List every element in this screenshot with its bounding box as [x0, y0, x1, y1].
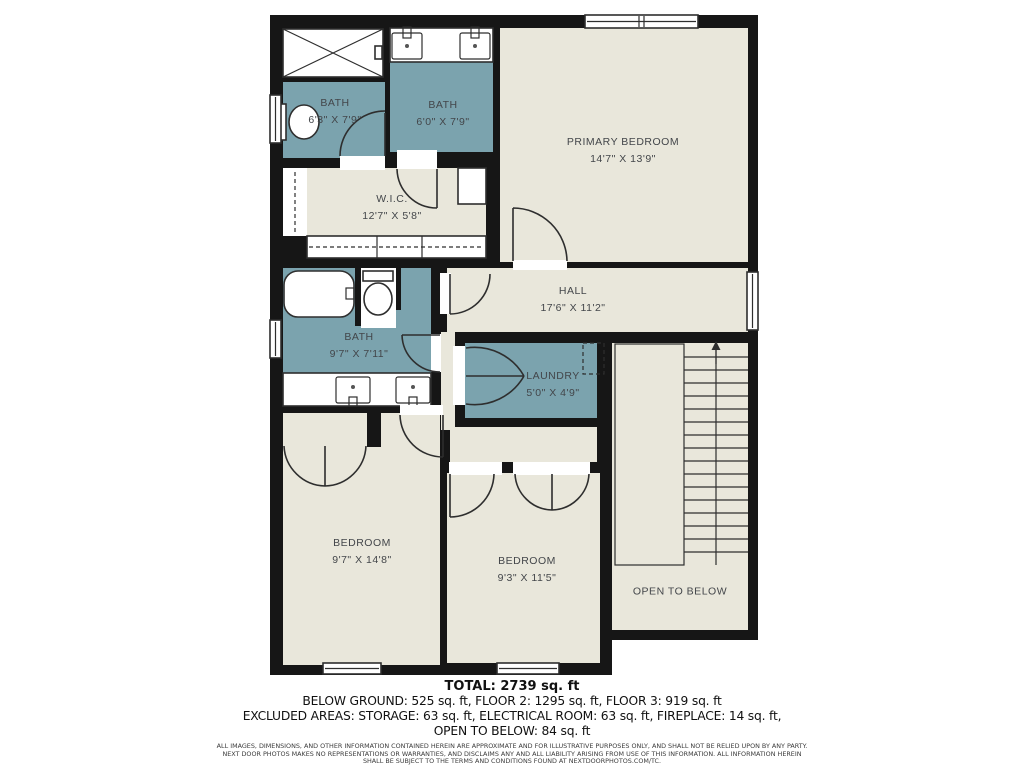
wic-shelf-right	[458, 168, 486, 204]
closet1-stub-wall	[367, 413, 381, 447]
room-dims: 9'3" X 11'5"	[498, 570, 557, 587]
room-dims: 17'6" X 11'2"	[540, 300, 605, 317]
bath3-toilet-bowl	[364, 283, 392, 315]
bath3-door-opening	[431, 334, 441, 372]
label-open-to-below: OPEN TO BELOW	[633, 584, 727, 601]
total-area: TOTAL: 2739 sq. ft	[0, 679, 1024, 694]
bath3-drain-right	[411, 385, 415, 389]
disclaimer-line3: SHALL BE SUBJECT TO THE TERMS AND CONDIT…	[0, 758, 1024, 766]
room-name: LAUNDRY	[526, 368, 580, 385]
label-laundry: LAUNDRY 5'0" X 4'9"	[526, 368, 580, 402]
wic-door-opening	[397, 150, 437, 169]
room-name: W.I.C.	[362, 191, 422, 208]
shower-valve	[375, 46, 382, 59]
bath3-toilet-tank	[363, 271, 393, 281]
bath1-door-opening	[340, 156, 385, 170]
excluded-areas-line2: OPEN TO BELOW: 84 sq. ft	[0, 724, 1024, 739]
bath3-drain-left	[351, 385, 355, 389]
label-bath3: BATH 9'7" X 7'11"	[330, 329, 389, 363]
closet2-door-opening	[513, 462, 590, 475]
room-dims: 14'7" X 13'9"	[567, 151, 679, 168]
room-name: HALL	[540, 283, 605, 300]
bedroom1-door-opening	[400, 405, 443, 415]
bath2-drain-left	[405, 44, 409, 48]
label-bath2: BATH 6'0" X 7'9"	[416, 97, 469, 131]
label-bedroom2: BEDROOM 9'3" X 11'5"	[498, 553, 557, 587]
room-name: BATH	[308, 95, 361, 112]
label-bath1: BATH 6'3" X 7'9"	[308, 95, 361, 129]
bath2-drain-right	[473, 44, 477, 48]
room-name: BATH	[330, 329, 389, 346]
room-name: BEDROOM	[332, 535, 392, 552]
excluded-areas-line1: EXCLUDED AREAS: STORAGE: 63 sq. ft, ELEC…	[0, 709, 1024, 724]
room-name: PRIMARY BEDROOM	[567, 134, 679, 151]
room-name: BATH	[416, 97, 469, 114]
room-dims: 9'7" X 7'11"	[330, 346, 389, 363]
corridor-horizontal	[450, 427, 597, 462]
room-name: BEDROOM	[498, 553, 557, 570]
room-dims: 5'0" X 4'9"	[526, 385, 580, 402]
page-cutout	[612, 640, 762, 676]
room-name: OPEN TO BELOW	[633, 584, 727, 601]
disclaimer: ALL IMAGES, DIMENSIONS, AND OTHER INFORM…	[0, 743, 1024, 766]
label-wic: W.I.C. 12'7" X 5'8"	[362, 191, 422, 225]
floor-areas: BELOW GROUND: 525 sq. ft, FLOOR 2: 1295 …	[0, 694, 1024, 709]
laundry-door-opening	[453, 346, 465, 405]
toilet-nook-wall-left	[355, 268, 361, 326]
room-dims: 9'7" X 14'8"	[332, 552, 392, 569]
label-bedroom1: BEDROOM 9'7" X 14'8"	[332, 535, 392, 569]
area-summary: TOTAL: 2739 sq. ft BELOW GROUND: 525 sq.…	[0, 679, 1024, 766]
room-dims: 6'0" X 7'9"	[416, 114, 469, 131]
bedroom2-door-opening	[449, 462, 502, 475]
floor-plan-page: BATH 6'3" X 7'9" BATH 6'0" X 7'9" PRIMAR…	[0, 0, 1024, 768]
toilet-nook-wall-right	[396, 268, 401, 310]
bathtub	[284, 271, 354, 317]
room-dims: 6'3" X 7'9"	[308, 112, 361, 129]
label-primary-bedroom: PRIMARY BEDROOM 14'7" X 13'9"	[567, 134, 679, 168]
room-dims: 12'7" X 5'8"	[362, 208, 422, 225]
primary-door-opening	[513, 260, 567, 270]
label-hall: HALL 17'6" X 11'2"	[540, 283, 605, 317]
